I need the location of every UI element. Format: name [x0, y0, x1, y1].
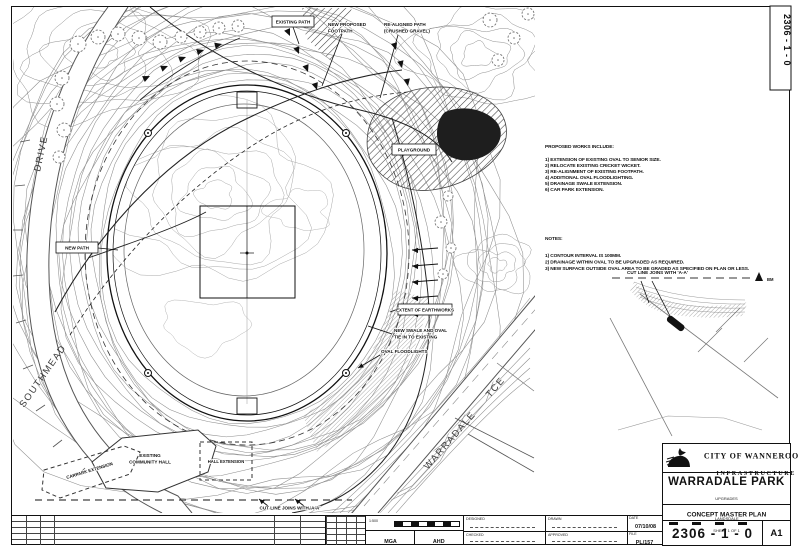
proposed-works-item: 3) RE-ALIGNMENT OF EXISTING FOOTPATH.: [545, 169, 644, 175]
floodlights-label: OVAL FLOODLIGHTS: [381, 349, 428, 354]
proposed-works-item: 2) RELOCATE EXISTING CRICKET WICKET.: [545, 163, 640, 169]
drawn-cell: DRAWN: [546, 516, 628, 531]
date-label: DATE: [629, 516, 638, 520]
realigned-path-label-line2: (CRUSHED GRAVEL): [384, 29, 430, 34]
title-block-sheet-row: CONCEPT MASTER PLAN SHEET 1 OF 1: [663, 504, 790, 520]
realigned-path-label-line1: RE-ALIGNED PATH: [384, 22, 426, 27]
proposed-works-item: 5) DRAINAGE SWALE EXTENSION.: [545, 181, 622, 187]
sheet-size: A1: [762, 521, 790, 546]
footpath-label-line2: FOOTPATH: [328, 29, 353, 34]
title-block-number-row: 2306 - 1 - 0 A1: [663, 520, 790, 545]
sheet-title: CONCEPT MASTER PLAN: [687, 511, 766, 518]
scale-cell: 1:500: [366, 516, 464, 531]
notes-item: 3) NEW SURFACE OUTSIDE OVAL AREA TO BE G…: [545, 266, 749, 272]
revision-table: [12, 516, 326, 545]
drawing-number-tab: 2306 - 1 - 0: [770, 6, 792, 90]
extent-earthworks-label: EXTENT OF EARTHWORKS: [396, 308, 454, 313]
org-name: CITY OF WANNEROO: [704, 452, 799, 461]
notes-item: 2) DRAINAGE WITHIN OVAL TO BE UPGRADED A…: [545, 260, 684, 266]
date-cell: DATE 07/10/08: [628, 516, 662, 531]
corner-drawing-number: 2306 - 1 - 0: [782, 14, 792, 66]
checked-label: CHECKED: [466, 533, 484, 537]
datum-horizontal-cell: MGA: [366, 531, 415, 545]
notes-item: 1) CONTOUR INTERVAL IS 100MM.: [545, 253, 621, 259]
datum-vertical-cell: AHD: [415, 531, 464, 545]
footpath-label-line1: NEW PROPOSED: [328, 22, 367, 27]
date-value: 07/10/08: [635, 523, 656, 529]
proposed-works-item: 4) ADDITIONAL OVAL FLOODLIGHTING.: [545, 175, 633, 181]
title-strip: 1:500 MGA AHD DESIGNED DRAWN CHECKED APP…: [12, 515, 662, 545]
community-hall-label-line1: EXISTING: [139, 453, 161, 458]
title-block-org-row: CITY OF WANNEROO INFRASTRUCTURE: [663, 444, 790, 472]
city-of-wanneroo-logo: [666, 447, 692, 469]
community-hall-label-line2: COMMUNITY HALL: [129, 460, 171, 465]
datum-horizontal: MGA: [384, 538, 397, 544]
designed-cell: DESIGNED: [464, 516, 546, 531]
scale-bar: [394, 521, 460, 527]
scale-value: 1:500: [369, 519, 378, 523]
swale-label-line2: TIE IN TO EXISTING: [394, 335, 438, 340]
proposed-works-item: 6) CAR PARK EXTENSION.: [545, 187, 604, 193]
playground-label: PLAYGROUND: [398, 148, 431, 153]
datum-vertical: AHD: [433, 538, 445, 544]
drawn-label: DRAWN: [548, 517, 561, 521]
designed-label: DESIGNED: [466, 517, 485, 521]
cut-line-label: CUT LINE JOINS WITH 'A-A': [260, 506, 321, 511]
inset-benchmark-label: BM: [767, 277, 774, 282]
new-path-label: NEW PATH: [65, 246, 89, 251]
swale-label-line1: NEW SWALE AND OVAL: [394, 328, 447, 333]
drawing-sheet: DRIVE SOUTHMEAD WARRADALE TCE NEW PATH E…: [0, 0, 802, 551]
proposed-works-item: 1) EXTENSION OF EXISTING OVAL TO SENIOR …: [545, 157, 661, 163]
proposed-works-title: PROPOSED WORKS INCLUDE:: [545, 144, 614, 150]
signature-line: [470, 541, 535, 542]
signature-line: [552, 541, 617, 542]
approved-cell: APPROVED: [546, 531, 628, 545]
project-subtitle: UPGRADES: [715, 496, 737, 501]
existing-path-label: EXISTING PATH: [276, 20, 311, 25]
drawing-number: 2306 - 1 - 0: [663, 526, 762, 541]
amendment-grid: [326, 516, 366, 545]
title-block: CITY OF WANNEROO INFRASTRUCTURE WARRADAL…: [662, 443, 791, 546]
project-title: WARRADALE PARK: [663, 476, 790, 488]
signature-line: [552, 527, 617, 528]
file-label: FILE: [629, 532, 637, 536]
checked-cell: CHECKED: [464, 531, 546, 545]
signature-line: [470, 527, 535, 528]
file-cell: FILE PL/157: [628, 531, 662, 545]
approved-label: APPROVED: [548, 533, 568, 537]
fold-ticks: [669, 522, 757, 525]
hall-extension-label: HALL EXTENSION: [208, 459, 244, 464]
title-block-project-row: WARRADALE PARK UPGRADES LANDSDALE: [663, 472, 790, 504]
file-value: PL/157: [636, 539, 653, 545]
notes-title: NOTES:: [545, 236, 563, 242]
